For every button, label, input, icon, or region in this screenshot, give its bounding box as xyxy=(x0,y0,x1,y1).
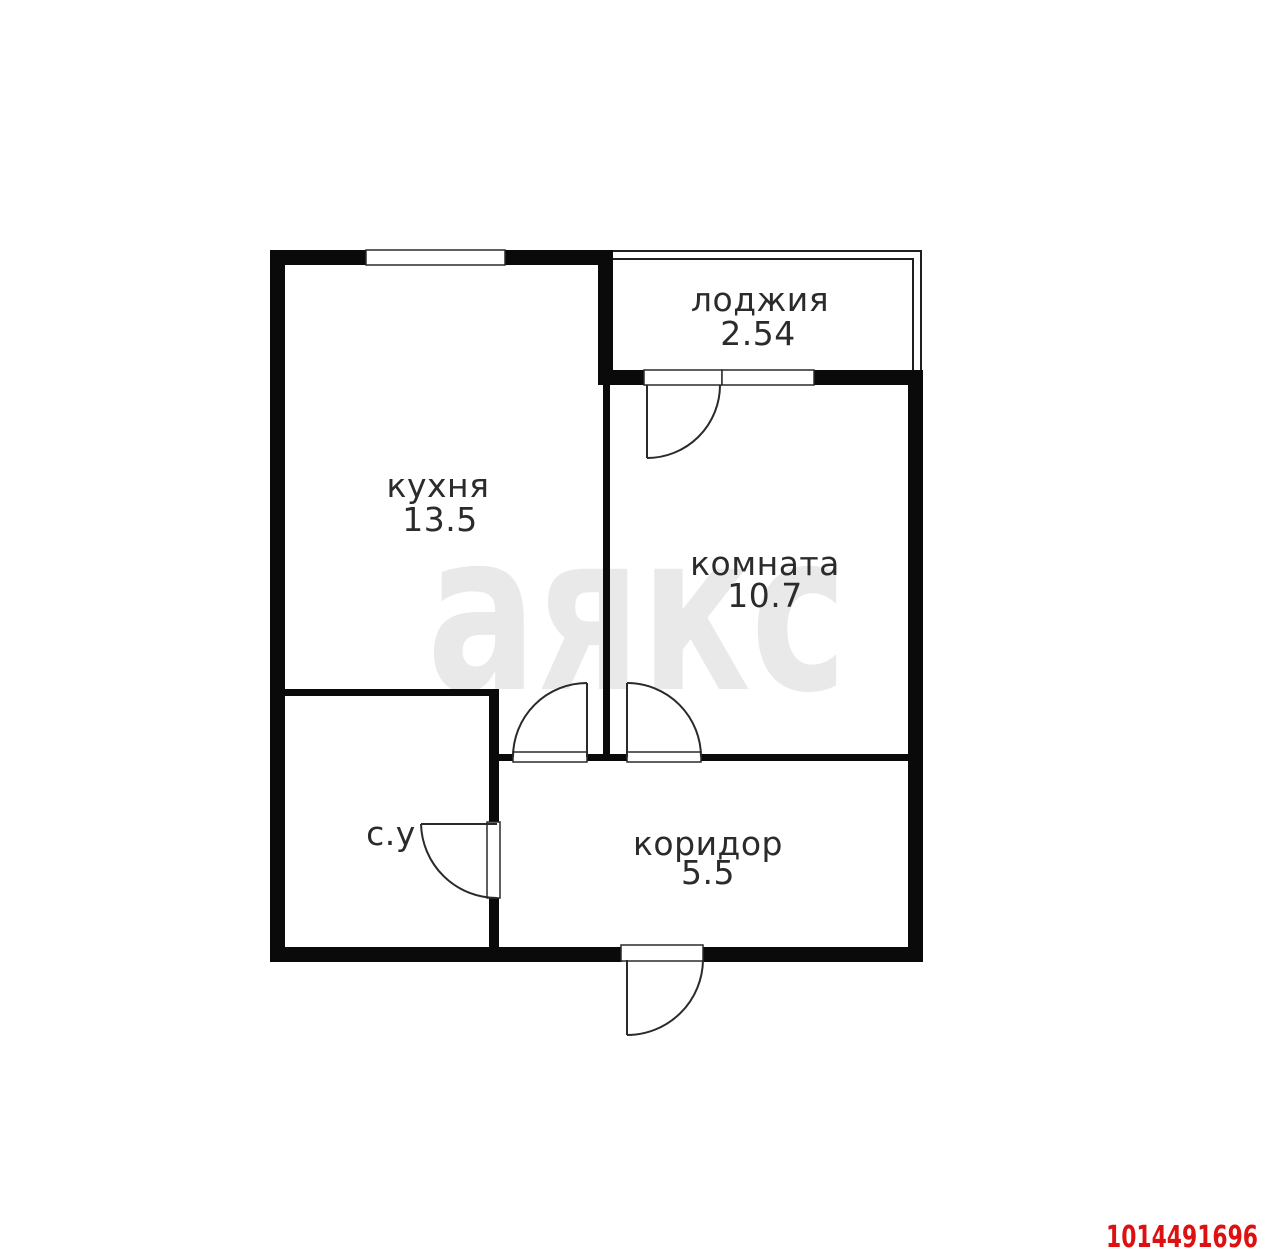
listing-id: 1014491696 xyxy=(1106,1220,1258,1255)
entrance-door-swing-arc xyxy=(627,960,703,1035)
wall-corridor-right xyxy=(700,754,923,761)
wall-corridor-middle xyxy=(586,754,628,761)
wall-bottom-left-segment xyxy=(270,947,622,962)
kitchen-window xyxy=(366,250,505,265)
kitchen-area: 13.5 xyxy=(402,500,477,539)
balcony-window xyxy=(722,370,814,385)
bathroom-label: с.у xyxy=(366,814,416,853)
corridor-area: 5.5 xyxy=(681,853,735,892)
wall-kitchen-room-partition xyxy=(603,385,610,757)
wall-top-left-segment xyxy=(270,250,366,265)
wall-right xyxy=(908,385,923,962)
room-door-opening xyxy=(627,752,701,762)
bathroom-door-swing-arc xyxy=(421,824,497,898)
balcony-door-opening xyxy=(644,370,722,385)
wall-loggia-bottom-right xyxy=(814,370,923,385)
entrance-door-opening xyxy=(621,945,703,961)
wall-kitchen-right-upper xyxy=(598,250,613,385)
loggia-area: 2.54 xyxy=(720,314,795,353)
bathroom-door-opening xyxy=(487,822,500,898)
wall-bathroom-top xyxy=(285,689,499,696)
wall-bottom-right-segment xyxy=(702,947,923,962)
room-area: 10.7 xyxy=(727,576,802,615)
wall-bathroom-right-upper xyxy=(489,689,499,823)
balcony-door-swing-arc xyxy=(647,385,720,458)
wall-bathroom-right-lower xyxy=(489,897,499,962)
kitchen-door-opening xyxy=(513,752,587,762)
wall-left xyxy=(270,250,285,962)
floor-plan: аякс xyxy=(0,0,1280,1255)
floor-plan-page: аякс xyxy=(0,0,1280,1255)
wall-loggia-bottom-left xyxy=(613,370,644,385)
wall-top-right-segment xyxy=(505,250,613,265)
